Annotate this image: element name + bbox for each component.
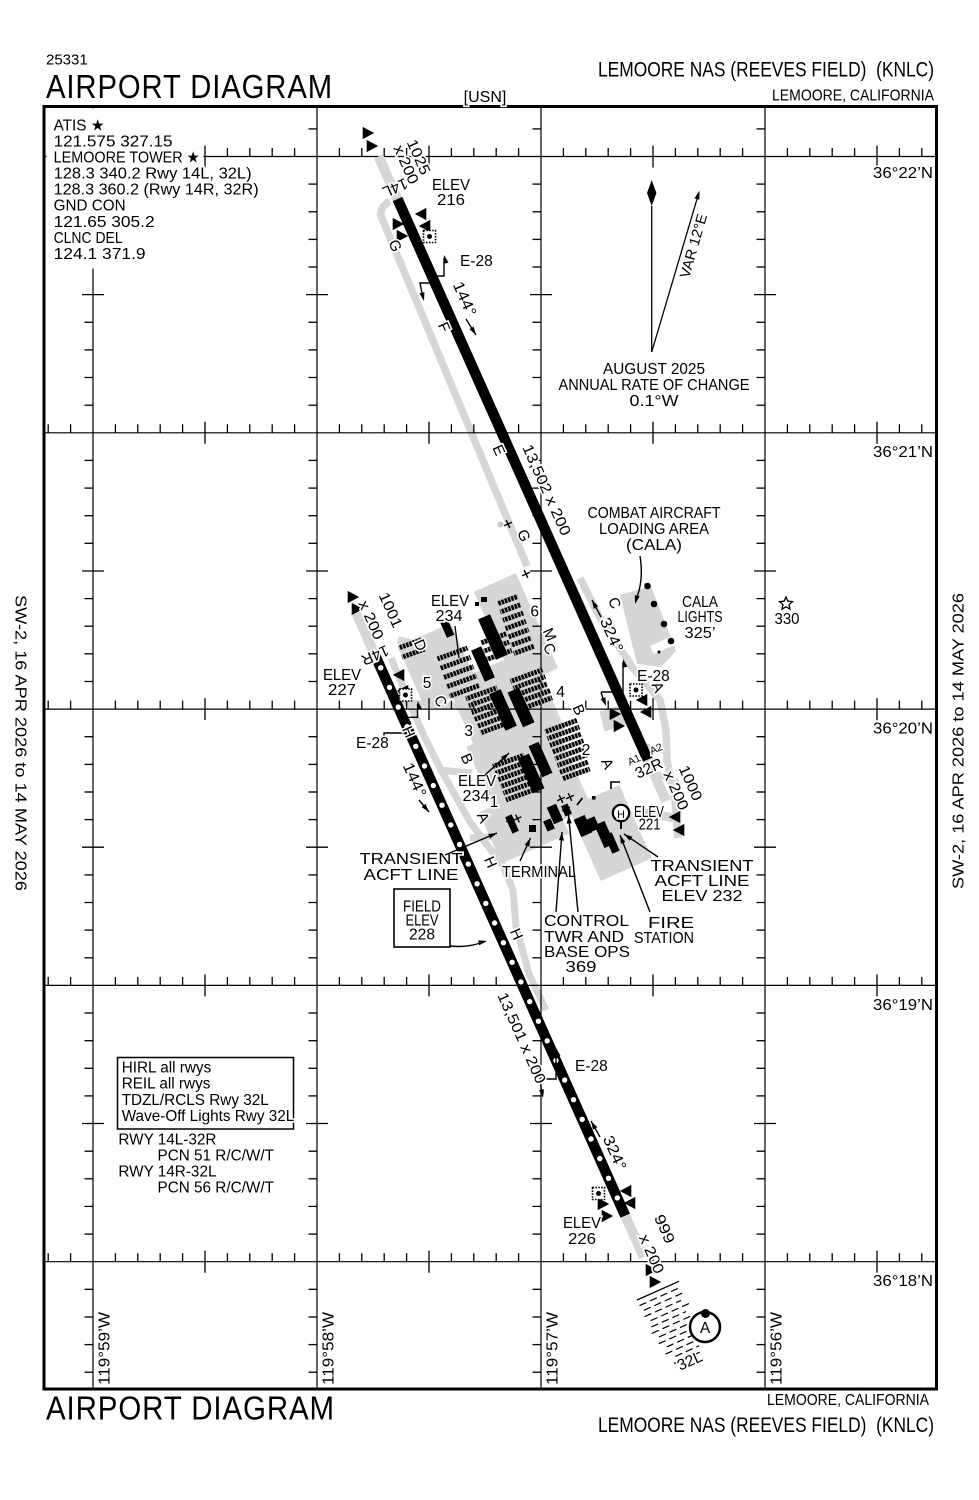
- svg-text:0.1°W: 0.1°W: [630, 393, 679, 410]
- svg-text:REIL all rwys: REIL all rwys: [122, 1076, 211, 1093]
- svg-text:4: 4: [556, 684, 565, 701]
- svg-text:5: 5: [423, 675, 432, 692]
- svg-text:CLNC DEL: CLNC DEL: [54, 230, 123, 247]
- svg-text:H: H: [617, 809, 625, 821]
- svg-text:Wave-Off Lights Rwy 32L: Wave-Off Lights Rwy 32L: [122, 1108, 295, 1125]
- svg-text:121.65 305.2: 121.65 305.2: [54, 214, 155, 231]
- svg-text:369: 369: [566, 959, 597, 976]
- svg-text:A: A: [700, 1320, 711, 1337]
- svg-text:124.1 371.9: 124.1 371.9: [54, 246, 146, 263]
- svg-text:LEMOORE TOWER ★: LEMOORE TOWER ★: [54, 150, 200, 167]
- svg-text:LEMOORE, CALIFORNIA: LEMOORE, CALIFORNIA: [767, 1392, 930, 1409]
- svg-text:119°58’W: 119°58’W: [321, 1312, 338, 1385]
- svg-text:PCN 56 R/C/W/T: PCN 56 R/C/W/T: [158, 1179, 274, 1196]
- svg-text:228: 228: [409, 927, 435, 944]
- svg-text:PCN 51 R/C/W/T: PCN 51 R/C/W/T: [158, 1147, 274, 1164]
- svg-text:AUGUST 2025: AUGUST 2025: [603, 361, 705, 378]
- svg-text:2: 2: [582, 742, 591, 759]
- svg-text:36°19’N: 36°19’N: [873, 997, 933, 1014]
- svg-text:36°21’N: 36°21’N: [873, 444, 933, 461]
- svg-text:E-28: E-28: [575, 1058, 608, 1075]
- svg-text:234: 234: [463, 788, 490, 805]
- svg-text:CONTROL: CONTROL: [544, 913, 629, 930]
- svg-text:TERMINAL: TERMINAL: [502, 864, 576, 881]
- svg-text:36°22’N: 36°22’N: [873, 165, 933, 182]
- svg-text:LOADING AREA: LOADING AREA: [599, 521, 710, 538]
- svg-text:AIRPORT DIAGRAM: AIRPORT DIAGRAM: [46, 1390, 335, 1427]
- svg-text:E-28: E-28: [637, 668, 670, 685]
- svg-text:ANNUAL RATE OF CHANGE: ANNUAL RATE OF CHANGE: [559, 377, 750, 394]
- svg-text:25331: 25331: [46, 51, 88, 68]
- svg-text:ATIS ★: ATIS ★: [54, 117, 105, 134]
- svg-text:119°57’W: 119°57’W: [545, 1312, 562, 1385]
- svg-text:119°59’W: 119°59’W: [97, 1312, 114, 1385]
- svg-text:LEMOORE NAS (REEVES FIELD) (K: LEMOORE NAS (REEVES FIELD) (KNLC): [598, 1414, 934, 1437]
- svg-text:6: 6: [530, 604, 539, 621]
- svg-text:COMBAT AIRCRAFT: COMBAT AIRCRAFT: [588, 505, 721, 522]
- svg-text:ELEV 232: ELEV 232: [662, 888, 743, 905]
- svg-text:E-28: E-28: [356, 735, 389, 752]
- svg-text:SW-2, 16 APR 2026 to 14 MAY: SW-2, 16 APR 2026 to 14 MAY 2026: [12, 595, 29, 891]
- svg-text:E-28: E-28: [460, 253, 493, 270]
- svg-text:216: 216: [437, 192, 465, 209]
- svg-text:RWY 14L-32R: RWY 14L-32R: [118, 1132, 216, 1149]
- svg-text:SW-2, 16 APR 2026 to 14 MAY: SW-2, 16 APR 2026 to 14 MAY 2026: [951, 593, 968, 889]
- svg-text:HIRL all rwys: HIRL all rwys: [122, 1060, 212, 1077]
- svg-text:128.3 340.2 Rwy 14L, 32L): 128.3 340.2 Rwy 14L, 32L): [54, 166, 252, 183]
- svg-text:226: 226: [568, 1231, 596, 1248]
- svg-text:36°18’N: 36°18’N: [873, 1273, 933, 1290]
- svg-text:AIRPORT DIAGRAM: AIRPORT DIAGRAM: [46, 68, 333, 105]
- svg-text:119°56’W: 119°56’W: [769, 1312, 786, 1385]
- svg-text:[USN]: [USN]: [464, 89, 507, 106]
- svg-text:234: 234: [436, 608, 463, 625]
- svg-text:121.575 327.15: 121.575 327.15: [54, 133, 173, 150]
- svg-text:LEMOORE NAS (REEVES FIELD) (K: LEMOORE NAS (REEVES FIELD) (KNLC): [598, 59, 934, 82]
- svg-text:ELEV: ELEV: [563, 1215, 602, 1232]
- svg-text:ACFT LINE: ACFT LINE: [364, 867, 459, 884]
- svg-text:128.3 360.2 (Rwy 14R, 32R): 128.3 360.2 (Rwy 14R, 32R): [54, 182, 259, 199]
- svg-text:STATION: STATION: [634, 930, 694, 947]
- svg-text:LIGHTS: LIGHTS: [678, 609, 723, 626]
- svg-text:325’: 325’: [685, 625, 716, 642]
- svg-text:LEMOORE, CALIFORNIA: LEMOORE, CALIFORNIA: [772, 88, 935, 105]
- svg-text:RWY 14R-32L: RWY 14R-32L: [118, 1164, 216, 1181]
- svg-text:227: 227: [328, 682, 356, 699]
- svg-text:1: 1: [490, 794, 499, 811]
- svg-text:TDZL/RCLS Rwy 32L: TDZL/RCLS Rwy 32L: [122, 1092, 269, 1109]
- svg-text:36°20’N: 36°20’N: [873, 721, 933, 738]
- svg-text:(CALA): (CALA): [626, 537, 682, 554]
- svg-text:3: 3: [464, 723, 473, 740]
- svg-text:GND CON: GND CON: [54, 198, 126, 215]
- svg-text:330: 330: [775, 611, 800, 628]
- svg-text:221: 221: [639, 817, 661, 834]
